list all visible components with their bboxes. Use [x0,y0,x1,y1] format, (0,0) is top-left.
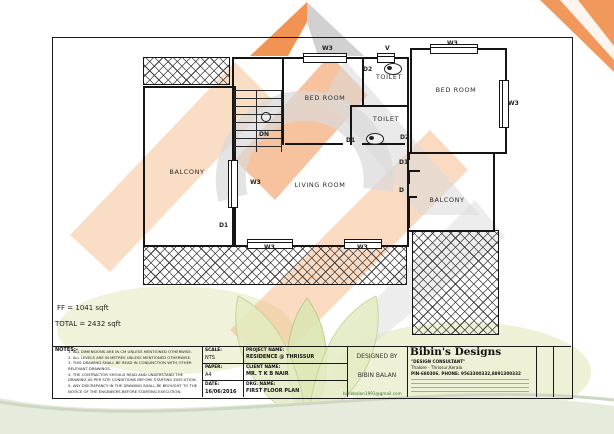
firm-fine-print [411,379,529,392]
client-value: MR. T K B NAIR [246,371,289,377]
note-item: 3. THIS DRAWING SHALL BE READ IN CONJUNC… [68,360,200,371]
note-item: 4. THE CONTRACTOR SHOULD READ AND UNDERS… [68,372,200,383]
firm-email: bibinbalan1991@gmail.com [343,391,402,396]
titleblock-divider [553,346,554,397]
project-label: PROJECT NAME: [246,348,284,353]
designed-by-label: DESIGNED BY [347,353,407,360]
paper-value: A4 [205,372,212,378]
scale-label: SCALE: [205,348,222,353]
date-value: 16/06/2016 [205,389,236,395]
client-label: CLIENT NAME: [246,365,280,370]
note-item: 1. ALL DIMENSIONS ARE IN CM UNLESS MENTI… [68,349,200,355]
sheet-border [52,37,573,399]
titleblock-divider [536,346,537,397]
drg-value: FIRST FLOOR PLAN [246,388,299,394]
drg-label: DRG. NAME: [246,382,275,387]
firm-address: Thalore - Thrissur,Kerala [411,365,462,370]
scale-value: NTS [205,355,215,361]
titleblock-divider [243,346,244,397]
titleblock-row-line [202,380,347,381]
paper-label: PAPER: [205,365,222,370]
titleblock-divider [407,346,408,397]
designed-by-name: BIBIN BALAN [347,372,407,379]
drawing-canvas: BALCONY BED ROOM LIVING ROOM TOILET TOIL… [0,0,614,434]
date-label: DATE: [205,382,219,387]
project-value: RESIDENCE @ THRISSUR [246,354,314,360]
notes-list: 1. ALL DIMENSIONS ARE IN CM UNLESS MENTI… [68,349,200,395]
firm-tagline: "DESIGN CONSULTANT" [411,359,465,364]
firm-name: Bibin's Designs [410,346,501,358]
firm-pin-phone: PIN-680306. PHONE: 9563300332,8891300332 [411,371,521,376]
titleblock-divider [202,346,203,397]
titleblock-row-line [202,363,347,364]
note-item: 5. ANY DISCREPANCY IN THE DRAWING SHALL … [68,383,200,394]
